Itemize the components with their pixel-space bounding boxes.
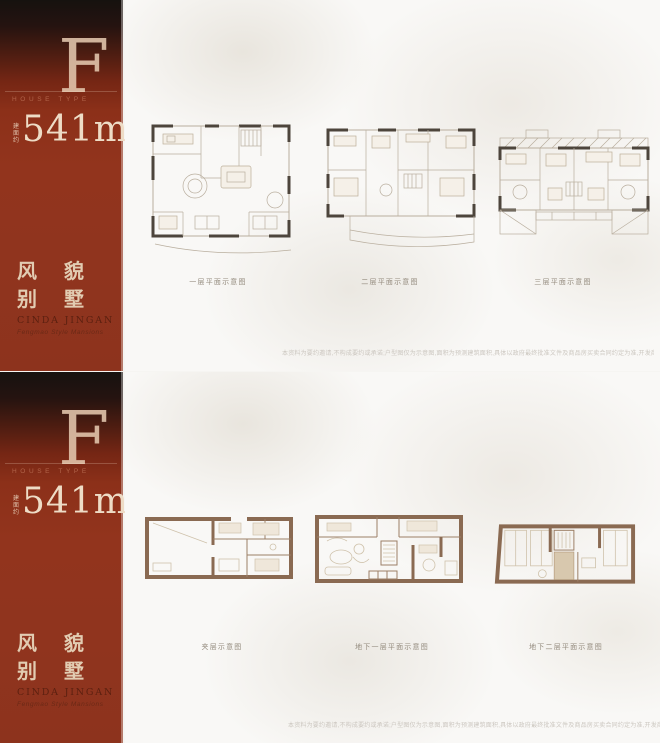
house-type-label: HOUSE TYPE (12, 96, 90, 103)
caption-mezzanine: 夹层示意图 (152, 642, 292, 652)
house-type-label: HOUSE TYPE (12, 468, 90, 475)
project-title-line2: 别 墅 (17, 285, 94, 313)
caption-basement2: 地下二层平面示意图 (496, 642, 636, 652)
floorplan-panel-lower: F HOUSE TYPE 建 面 约 541m² 风 貌 别 墅 CINDA J… (0, 372, 660, 743)
house-type-letter: F (58, 30, 109, 104)
project-title-line1: 风 貌 (17, 629, 94, 657)
floor-plan-basement1-drawing (313, 513, 465, 585)
disclaimer-lower: 本资料为要约邀请,不构成要约或承诺;户型图仅为示意图,面积为预测建筑面积,具体以… (288, 720, 660, 729)
floor-plan-level1-drawing (143, 116, 297, 261)
floor-plan-level2-drawing (320, 118, 482, 260)
caption-basement1: 地下一层平面示意图 (322, 642, 462, 652)
area-prefix-label: 建 面 约 (13, 495, 19, 516)
floor-plan-level1 (143, 116, 297, 261)
brand-subtitle: Fengmao Style Mansions (17, 701, 104, 708)
plans-area-lower: 夹层示意图 地下一层平面示意图 地下二层平面示意图 本资料为要约邀请,不构成要约… (125, 372, 660, 743)
sidebar-lower: F HOUSE TYPE 建 面 约 541m² 风 貌 别 墅 CINDA J… (0, 372, 123, 743)
caption-level3: 三层平面示意图 (493, 277, 633, 287)
project-title-cn: 风 貌 别 墅 (17, 257, 94, 313)
house-type-letter: F (58, 402, 109, 476)
project-title-cn: 风 貌 别 墅 (17, 629, 94, 685)
floorplan-panel-upper: F HOUSE TYPE 建 面 约 541m² 风 貌 别 墅 CINDA J… (0, 0, 660, 371)
floor-plan-basement2 (493, 518, 639, 590)
brand-name: CINDA JINGAN (17, 687, 114, 698)
plans-area-upper: 一层平面示意图 二层平面示意图 三层平面示意图 本资料为要约邀请,不构成要约或承… (125, 0, 660, 371)
brand-subtitle: Fengmao Style Mansions (17, 329, 104, 336)
divider-line (5, 91, 117, 92)
floor-plan-mezzanine (143, 513, 295, 583)
floor-plan-level3 (490, 126, 658, 240)
caption-level1: 一层平面示意图 (148, 277, 288, 287)
brochure-page: F HOUSE TYPE 建 面 约 541m² 风 貌 别 墅 CINDA J… (0, 0, 660, 743)
floor-plan-basement2-drawing (493, 518, 639, 590)
floor-plan-level3-drawing (490, 126, 658, 240)
divider-line (5, 463, 117, 464)
caption-level2: 二层平面示意图 (320, 277, 460, 287)
sidebar-upper: F HOUSE TYPE 建 面 约 541m² 风 貌 别 墅 CINDA J… (0, 0, 123, 371)
project-title-line1: 风 貌 (17, 257, 94, 285)
project-title-line2: 别 墅 (17, 657, 94, 685)
area-prefix-label: 建 面 约 (13, 123, 19, 144)
disclaimer-upper: 本资料为要约邀请,不构成要约或承诺;户型图仅为示意图,面积为预测建筑面积,具体以… (282, 348, 654, 357)
brand-name: CINDA JINGAN (17, 315, 114, 326)
floor-plan-basement1 (313, 513, 465, 585)
floor-plan-level2 (320, 118, 482, 260)
floor-plan-mezzanine-drawing (143, 513, 295, 583)
